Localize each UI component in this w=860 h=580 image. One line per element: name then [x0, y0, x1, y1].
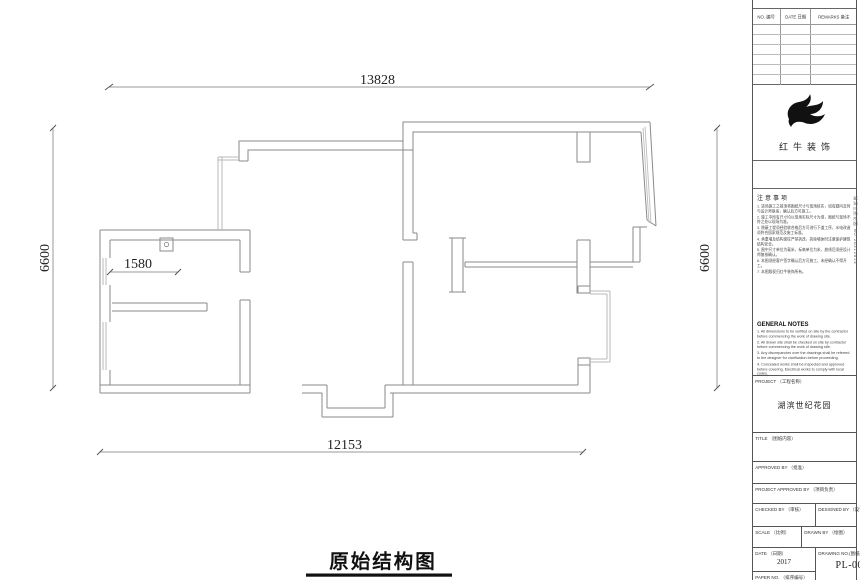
checked-designed-row: CHECKED BY （审核） DESIGNED BY （设计） — [753, 503, 856, 526]
checked-by-label: CHECKED BY （审核） — [753, 504, 800, 512]
drawing-no-value: PL-000 — [816, 560, 860, 571]
dim-bottom-label: 12153 — [327, 438, 362, 453]
scale-label: SCALE （比例） — [753, 527, 789, 535]
revision-empty-row — [753, 75, 856, 85]
cn-notes-list: 1. 进场施工之前须将图纸尺寸与现场核实，如有疑问及时与设计师联系，确认后方可施… — [757, 205, 852, 275]
wall-lines — [100, 122, 650, 417]
col-remarks: REMARKS 备注 — [818, 13, 849, 19]
col-date: DATE 日期 — [785, 13, 806, 19]
en-notes-heading: GENERAL NOTES — [757, 322, 853, 328]
en-notes-list: 1. All dimensions to be verified on site… — [757, 330, 852, 375]
drawn-by-label: DRAWN BY （绘图） — [802, 527, 848, 535]
dim-top-label: 13828 — [360, 73, 395, 88]
dim-right-label: 6600 — [698, 244, 713, 272]
scale-drawn-row: SCALE （比例） DRAWN BY （绘图） — [753, 526, 856, 547]
drawing-no-label: DRAWING NO.(图纸编号) — [816, 548, 860, 556]
window-lines — [103, 157, 610, 370]
date-cell: DATE （日期） 2017 — [753, 548, 815, 571]
revision-table-header: NO. 编号 DATE 日期 REMARKS 备注 — [753, 9, 856, 25]
cn-note-item: 1. 进场施工之前须将图纸尺寸与现场核实，如有疑问及时与设计师联系，确认后方可施… — [757, 205, 852, 215]
revision-empty-row — [753, 25, 856, 35]
drawing-title-label: TITLE （图纸内容） — [753, 433, 830, 441]
revision-empty-row — [753, 35, 856, 45]
plan-title: 原始结构图 — [329, 550, 437, 573]
revision-table: NO. 编号 DATE 日期 REMARKS 备注 — [753, 8, 856, 85]
en-note-item: 1. All dimensions to be verified on site… — [757, 330, 852, 340]
designed-by-label: DESIGNED BY （设计） — [816, 504, 860, 512]
en-note-item: 3. Any discrepancies over the drawings s… — [757, 352, 852, 362]
cn-note-item: 2. 施工中所有尺寸均以现场实际尺寸为准，图纸与现场不符之处以现场为准。 — [757, 216, 852, 226]
paper-no-cell: PAPER NO. （排序编号） — [753, 571, 815, 580]
cn-note-item: 3. 隐蔽工程须经验收合格后方可进行下道工序，水电改造须符合国家规范及施工标准。 — [757, 227, 852, 237]
project-approved-label: PROJECT APPROVED BY （项目负责） — [753, 484, 830, 492]
cn-note-item: 6. 本图须经客户签字确认后方可施工，未经确认不得开工。 — [757, 260, 852, 270]
en-note-item: 2. All drawn site shall be checked on si… — [757, 341, 852, 351]
empty-box — [753, 160, 856, 188]
drawing-no-cell: DRAWING NO.(图纸编号) PL-000 — [816, 548, 860, 580]
floor-plan-svg: 13828 6600 6600 12153 1580 原始结构图 — [0, 0, 752, 580]
en-note-item: 4. Concealed works shall be inspected an… — [757, 363, 852, 375]
date-value: 2017 — [753, 558, 815, 566]
brand-box: 红牛装饰 — [753, 85, 856, 160]
revision-empty-row — [753, 45, 856, 55]
date-drawingno-row: DATE （日期） 2017 PAPER NO. （排序编号） DRAWING … — [753, 547, 856, 580]
revision-empty-row — [753, 55, 856, 65]
floor-plan-area: 13828 6600 6600 12153 1580 原始结构图 — [0, 0, 752, 580]
date-label: DATE （日期） — [753, 548, 800, 556]
approved-label: APPROVED BY （批准） — [753, 462, 830, 470]
cn-note-item: 4. 承重墙及结构梁柱严禁拆改，拆除墙体时注意保护建筑结构安全。 — [757, 238, 852, 248]
brand-name: 红牛装饰 — [753, 140, 856, 153]
project-approved-section: PROJECT APPROVED BY （项目负责） — [753, 483, 856, 503]
notes-section: 注意事项 1. 进场施工之前须将图纸尺寸与现场核实，如有疑问及时与设计师联系，确… — [753, 188, 856, 375]
col-no: NO. 编号 — [758, 13, 776, 19]
project-label: PROJECT （工程名称） — [753, 376, 830, 384]
drawing-title-section: TITLE （图纸内容） — [753, 432, 856, 461]
title-block-panel: NO. 编号 DATE 日期 REMARKS 备注 红牛装饰 注意事项 1. 进… — [752, 0, 857, 580]
project-section: PROJECT （工程名称） 湖滨世纪花园 — [753, 375, 856, 432]
flue-circle-symbol — [164, 242, 168, 246]
paper-no-label: PAPER NO. （排序编号） — [753, 572, 800, 580]
cn-note-item: 5. 图中尺寸单位为毫米，标高单位为米，放线后须经设计师复核确认。 — [757, 249, 852, 259]
dim-left-label: 6600 — [38, 244, 53, 272]
plan-title-underline — [306, 574, 452, 577]
bull-logo-icon — [783, 93, 827, 133]
revision-empty-row — [753, 65, 856, 75]
cn-notes-heading: 注意事项 — [757, 193, 853, 202]
approved-section: APPROVED BY （批准） — [753, 461, 856, 483]
cn-note-item: 7. 本图版权归红牛装饰所有。 — [757, 270, 852, 275]
dim-inner-label: 1580 — [124, 257, 152, 272]
side-registry-text: 湖滨世纪花园 NO.20312014 — [852, 196, 858, 264]
project-name: 湖滨世纪花园 — [753, 400, 856, 411]
